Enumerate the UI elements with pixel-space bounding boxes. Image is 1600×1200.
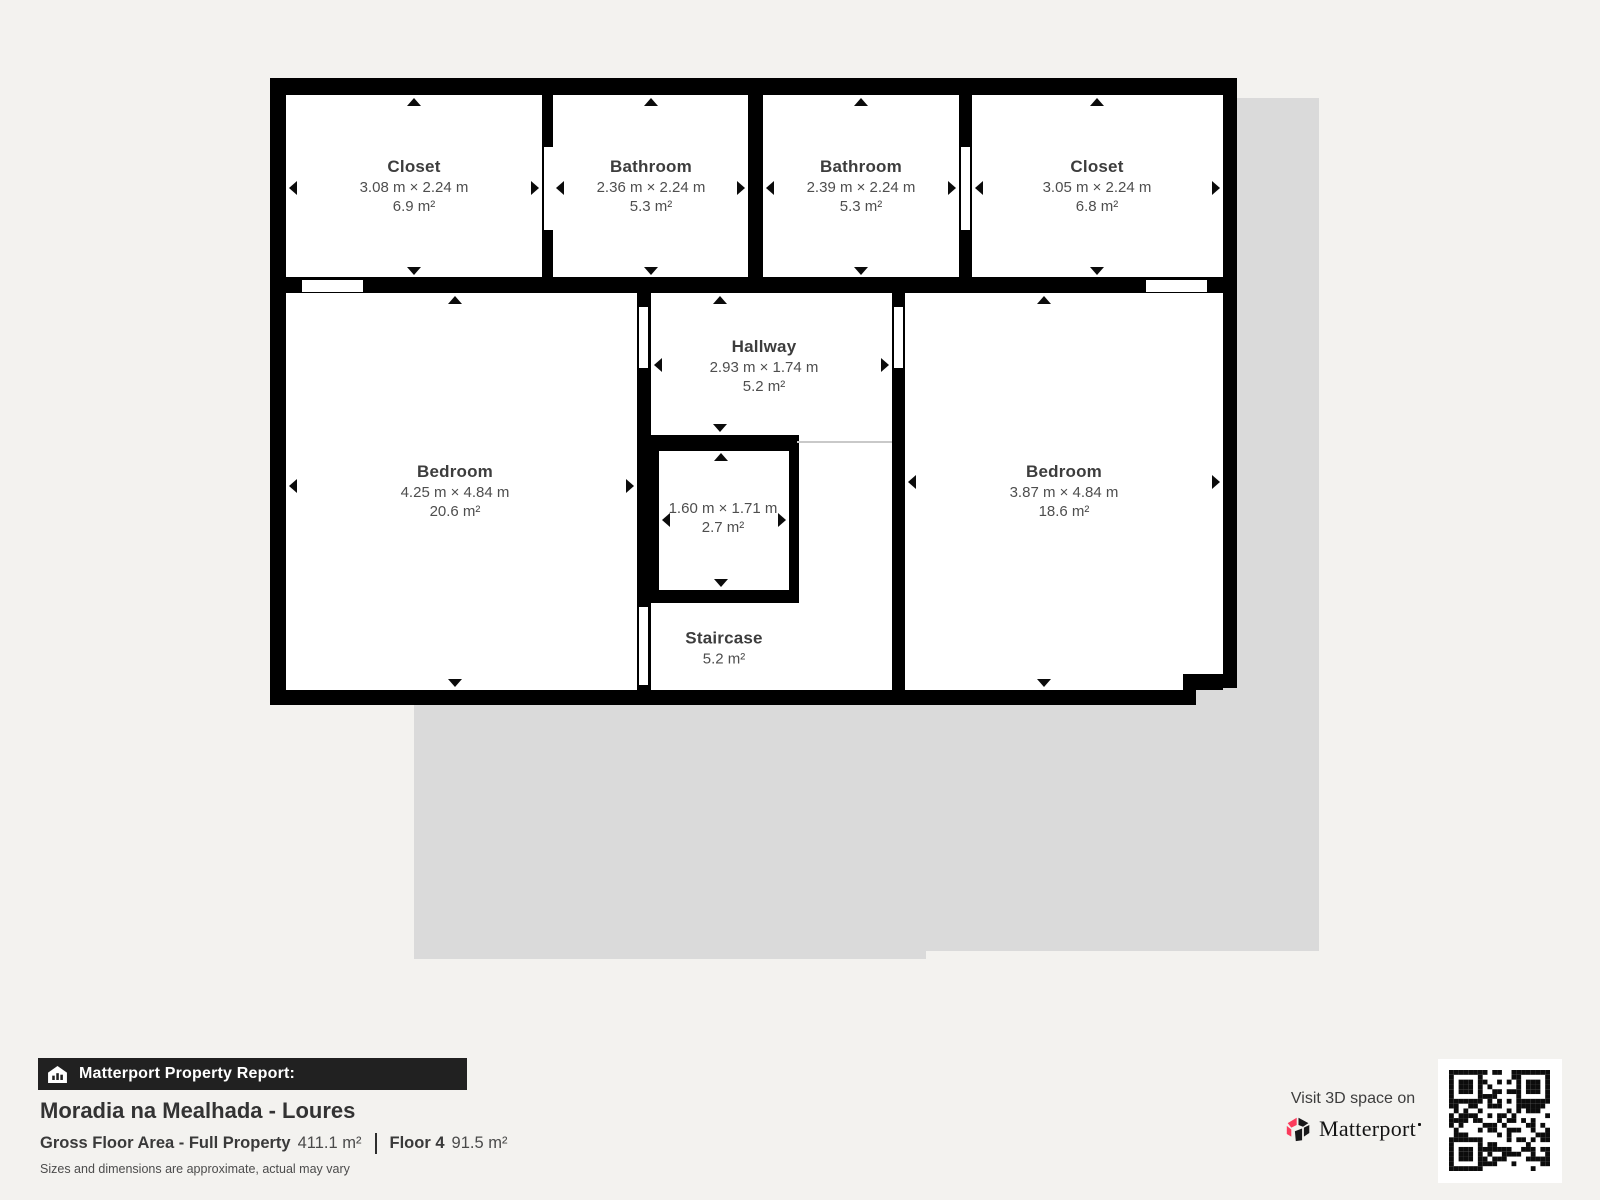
floor-label: Floor 4 bbox=[390, 1134, 445, 1153]
gfa-label: Gross Floor Area - Full Property bbox=[40, 1134, 291, 1153]
arrow-down-icon bbox=[1090, 267, 1104, 275]
arrow-left-icon bbox=[556, 181, 564, 195]
arrow-down-icon bbox=[407, 267, 421, 275]
visit-3d-cta: Visit 3D space on Matterport bbox=[1255, 1090, 1451, 1143]
arrow-left-icon bbox=[766, 181, 774, 195]
door-closet-tl-bottom bbox=[302, 280, 363, 292]
arrow-up-icon bbox=[1090, 98, 1104, 106]
label-staircase: Staircase 5.2 m² bbox=[685, 628, 762, 669]
label-bedroom-right: Bedroom 3.87 m × 4.84 m 18.6 m² bbox=[1010, 461, 1119, 521]
label-hallway: Hallway 2.93 m × 1.74 m 5.2 m² bbox=[710, 336, 819, 396]
arrow-down-icon bbox=[644, 267, 658, 275]
arrow-right-icon bbox=[778, 513, 786, 527]
arrow-up-icon bbox=[448, 296, 462, 304]
arrow-left-icon bbox=[289, 181, 297, 195]
label-closet-top-left: Closet 3.08 m × 2.24 m 6.9 m² bbox=[360, 156, 469, 216]
label-shaft: 1.60 m × 1.71 m 2.7 m² bbox=[669, 499, 778, 537]
gfa-value: 411.1 m² bbox=[298, 1134, 362, 1153]
arrow-up-icon bbox=[854, 98, 868, 106]
arrow-right-icon bbox=[626, 479, 634, 493]
arrow-down-icon bbox=[448, 679, 462, 687]
report-banner-label: Matterport Property Report: bbox=[79, 1065, 295, 1083]
matterport-wordmark: Matterport bbox=[1319, 1116, 1416, 1142]
label-bedroom-left: Bedroom 4.25 m × 4.84 m 20.6 m² bbox=[401, 461, 510, 521]
arrow-right-icon bbox=[948, 181, 956, 195]
arrow-up-icon bbox=[1037, 296, 1051, 304]
arrow-up-icon bbox=[714, 453, 728, 461]
arrow-left-icon bbox=[908, 475, 916, 489]
door-hallway-right bbox=[894, 307, 903, 368]
arrow-right-icon bbox=[737, 181, 745, 195]
staircase-edge-line bbox=[797, 441, 892, 443]
house-report-icon bbox=[48, 1066, 67, 1083]
divider bbox=[375, 1133, 377, 1154]
door-closet-tr-bottom bbox=[1146, 280, 1207, 292]
arrow-down-icon bbox=[854, 267, 868, 275]
arrow-down-icon bbox=[1037, 679, 1051, 687]
floor-area-line: Gross Floor Area - Full Property 411.1 m… bbox=[40, 1133, 507, 1154]
door-staircase-left bbox=[639, 607, 648, 685]
floor-value: 91.5 m² bbox=[452, 1134, 508, 1153]
disclaimer-text: Sizes and dimensions are approximate, ac… bbox=[40, 1162, 350, 1176]
lower-floor-silhouette-step bbox=[414, 951, 926, 959]
door-hallway-left bbox=[639, 307, 648, 368]
qr-code bbox=[1438, 1059, 1562, 1183]
label-bathroom-left: Bathroom 2.36 m × 2.24 m 5.3 m² bbox=[597, 156, 706, 216]
floorplan: Closet 3.08 m × 2.24 m 6.9 m² Bathroom 2… bbox=[270, 78, 1237, 705]
arrow-up-icon bbox=[407, 98, 421, 106]
label-bathroom-right: Bathroom 2.39 m × 2.24 m 5.3 m² bbox=[807, 156, 916, 216]
door-closet-tl-bathroom bbox=[544, 147, 553, 230]
trademark-dot bbox=[1418, 1123, 1421, 1126]
arrow-up-icon bbox=[713, 296, 727, 304]
plan-walls-bottom bbox=[270, 688, 1196, 705]
arrow-right-icon bbox=[881, 358, 889, 372]
visit-text: Visit 3D space on bbox=[1255, 1090, 1451, 1108]
report-banner: Matterport Property Report: bbox=[38, 1058, 467, 1090]
matterport-pinwheel-icon bbox=[1285, 1115, 1312, 1143]
bedroom-right-corner-notch bbox=[1183, 674, 1223, 690]
label-closet-top-right: Closet 3.05 m × 2.24 m 6.8 m² bbox=[1043, 156, 1152, 216]
arrow-left-icon bbox=[975, 181, 983, 195]
arrow-left-icon bbox=[289, 479, 297, 493]
arrow-up-icon bbox=[644, 98, 658, 106]
arrow-right-icon bbox=[1212, 181, 1220, 195]
arrow-left-icon bbox=[662, 513, 670, 527]
matterport-logo: Matterport bbox=[1255, 1115, 1451, 1143]
arrow-down-icon bbox=[713, 424, 727, 432]
arrow-right-icon bbox=[1212, 475, 1220, 489]
property-title: Moradia na Mealhada - Loures bbox=[40, 1098, 355, 1124]
arrow-right-icon bbox=[531, 181, 539, 195]
arrow-down-icon bbox=[714, 579, 728, 587]
door-bathroom-closet-tr bbox=[961, 147, 970, 230]
arrow-left-icon bbox=[654, 358, 662, 372]
